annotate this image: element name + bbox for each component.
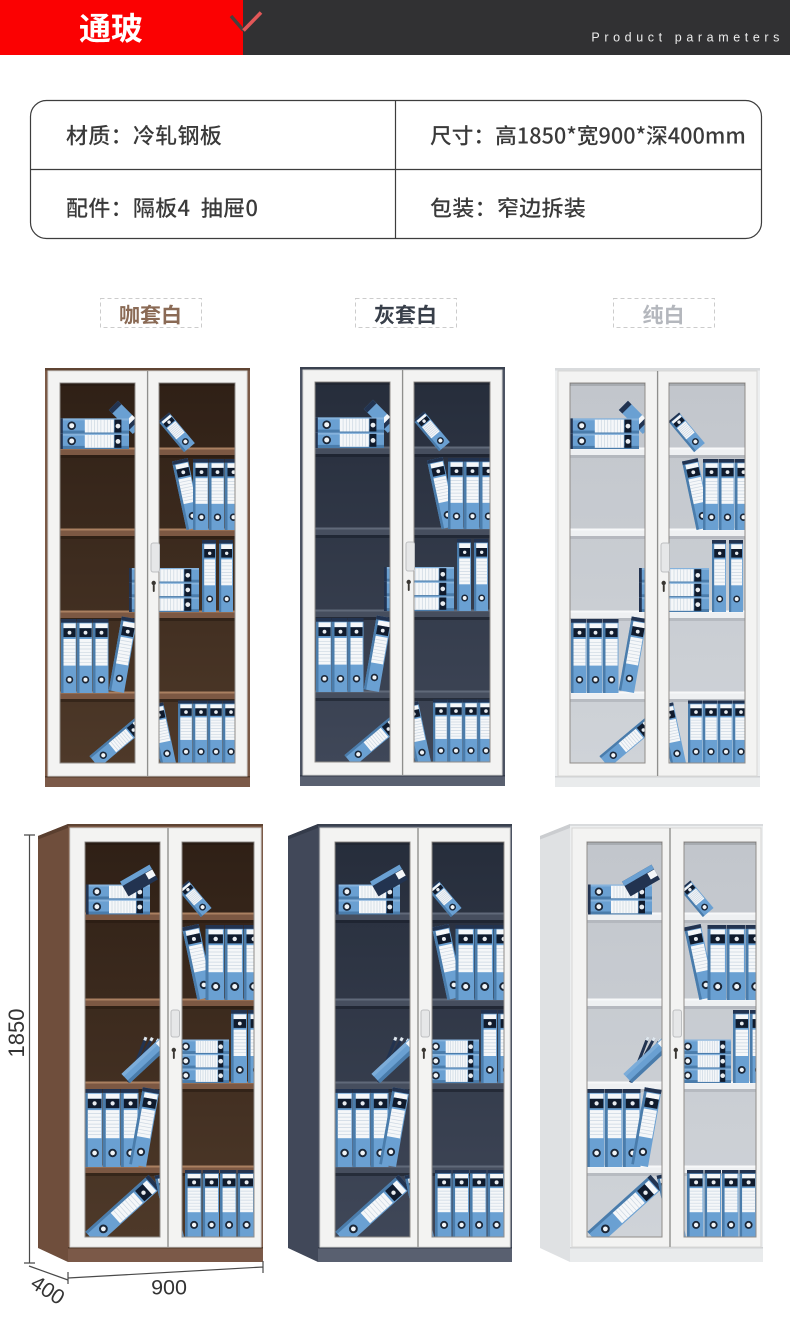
svg-text:1850: 1850 [4, 1009, 29, 1058]
svg-text:Product parameters: Product parameters [591, 31, 784, 45]
svg-text:900: 900 [151, 1276, 187, 1300]
